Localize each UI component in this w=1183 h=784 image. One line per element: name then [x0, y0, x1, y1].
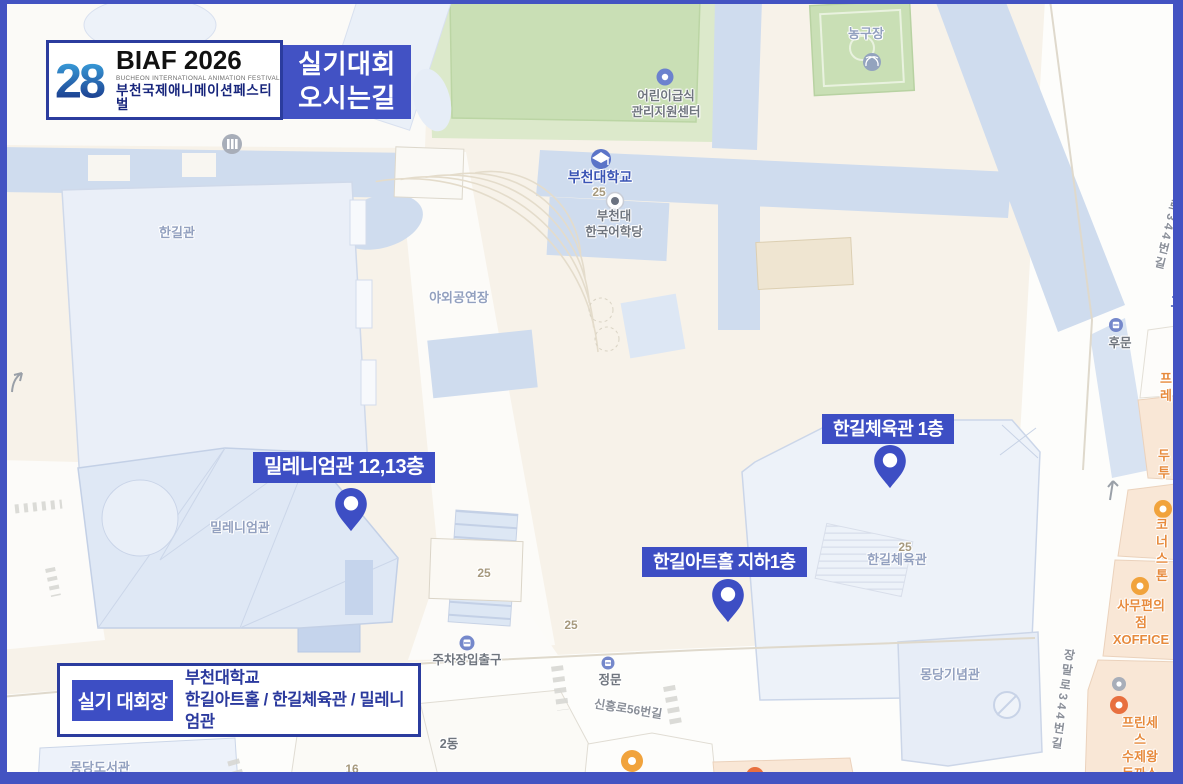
hangil-arthall-badge: 한길아트홀 지하1층 — [642, 547, 807, 577]
logo-subtitle-ko: 부천국제애니메이션페스티벌 — [116, 84, 280, 112]
millennium-hall-pin-icon — [332, 487, 370, 533]
hangil-arthall-pin-icon — [709, 578, 747, 624]
label-hangil-hall: 한길관 — [159, 225, 195, 242]
back-gate-marker-icon — [1109, 318, 1123, 332]
emart-marker-icon — [621, 750, 643, 772]
label-korean-language-institute: 부천대 한국어학당 — [585, 208, 643, 241]
label-number-25-d: 25 — [564, 618, 577, 634]
numbered-marker-icon — [1112, 677, 1126, 691]
label-bucheon-university: 부천대학교 — [568, 168, 632, 186]
millennium-hall-badge: 밀레니엄관 12,13층 — [253, 452, 435, 483]
logo-subtitle-en: BUCHEON INTERNATIONAL ANIMATION FESTIVAL — [116, 76, 280, 83]
children-food-center-marker-icon — [657, 69, 674, 86]
label-children-food-center: 어린이급식 관리지원센터 — [631, 88, 700, 121]
label-mongdang-memorial-hall: 몽당기념관 — [920, 667, 980, 684]
label-mongdang-library: 몽당도서관 — [70, 760, 130, 777]
logo-title: BIAF 2026 — [116, 47, 280, 74]
logo-number: 28 — [55, 54, 105, 108]
label-go-cut: 고 — [1171, 293, 1183, 311]
label-main-gate: 정문 — [598, 672, 621, 688]
venue-badge: 실기 대회장 — [72, 680, 173, 721]
label-basketball-court: 농구장 — [848, 26, 884, 43]
university-marker-icon — [591, 149, 611, 169]
label-building-2: 2동 — [440, 736, 458, 752]
facility-marker-icon — [222, 134, 242, 154]
venue-halls: 한길아트홀 / 한길체육관 / 밀레니엄관 — [185, 689, 418, 734]
venue-university: 부천대학교 — [185, 667, 418, 689]
label-number-25-a: 25 — [592, 185, 605, 201]
label-parking-entrance: 주차장입출구 — [432, 652, 501, 668]
label-peure-cut: 프레 — [1158, 371, 1175, 405]
label-emart24: 이마트24 — [605, 772, 655, 784]
label-number-25-c: 25 — [477, 566, 490, 582]
label-back-gate: 후문 — [1108, 335, 1131, 351]
restaurant-marker-icon — [1110, 696, 1128, 714]
biaf-logo: 28 BIAF 2026 BUCHEON INTERNATIONAL ANIMA… — [46, 40, 283, 120]
hangil-gym-pin-icon — [871, 444, 909, 490]
biaf-28-icon: 28 — [49, 51, 109, 109]
label-hangil-gym: 한길체육관 — [867, 552, 927, 569]
label-number-16: 16 — [345, 762, 358, 778]
venue-banner: 실기 대회장 부천대학교 한길아트홀 / 한길체육관 / 밀레니엄관 — [57, 663, 421, 737]
parking-entrance-marker-icon — [460, 636, 475, 651]
label-outdoor-stage: 야외공연장 — [429, 290, 489, 307]
cafe-marker-icon — [1154, 500, 1172, 518]
language-institute-marker-icon — [607, 193, 624, 210]
label-dutu-cut: 두투 — [1155, 448, 1174, 482]
label-princess-tonkatsu: 프린세스 수제왕돈까스 — [1119, 715, 1162, 783]
label-cornerstone: 코너스톤 — [1152, 517, 1173, 585]
main-gate-marker-icon — [602, 657, 615, 670]
label-millennium-hall: 밀레니엄관 — [210, 520, 270, 537]
label-xoffice: 사무편의점 XOFFICE — [1113, 598, 1169, 649]
store-marker-icon — [1131, 577, 1149, 595]
biaf-directions-poster: 농구장 어린이급식 관리지원센터 부천대학교 25 부천대 한국어학당 한길관 … — [0, 0, 1183, 784]
page-title: 실기대회 오시는길 — [283, 45, 411, 119]
hangil-gym-badge: 한길체육관 1층 — [822, 414, 954, 444]
